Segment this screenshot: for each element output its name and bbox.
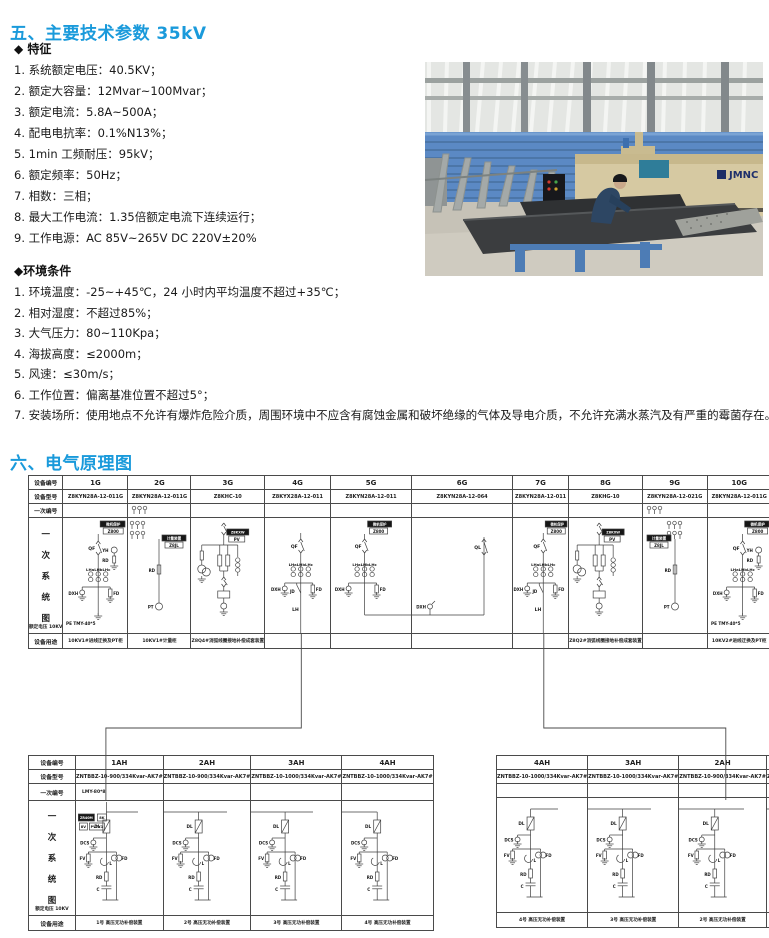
svg-text:微机保护: 微机保护: [749, 521, 765, 526]
svg-text:PE TMY-40*5: PE TMY-40*5: [66, 621, 96, 626]
diagram-char: 一: [41, 528, 50, 540]
svg-text:DXH: DXH: [514, 587, 524, 592]
svg-text:FD: FD: [300, 856, 307, 861]
cell-4AH-schematic: DLDCSFVFDLRDC: [497, 798, 588, 913]
svg-text:C: C: [188, 887, 191, 892]
svg-text:Z8KXW: Z8KXW: [231, 530, 245, 534]
cell-8G-schematic: Z8KXWPV: [569, 518, 643, 634]
diagram-vertical-label: 一次系统图额定电压 10KV: [29, 520, 62, 632]
cell-2AH-id: 2AH: [163, 756, 251, 770]
schematic-3AH: DLDCSFVFDLRDC: [588, 799, 651, 912]
svg-text:8V: 8V: [81, 825, 87, 829]
feature-item: 5. 1min 工频耐压：95kV；: [14, 144, 419, 165]
cell-8G-primary: [569, 504, 643, 518]
cell-3G-model: Z8KHC-10: [191, 490, 265, 504]
svg-text:RD: RD: [520, 872, 527, 877]
svg-text:RD: RD: [705, 872, 712, 877]
diagram-char: 统: [48, 873, 57, 885]
cell-9G-purpose: [642, 634, 707, 649]
svg-text:Z8JL: Z8JL: [170, 542, 180, 547]
diagram-vertical-label: 一次系统图额定电压 10KV: [29, 802, 75, 914]
device-table: 设备编号1G2G3G4G5G6G7G8G9G10G设备型号Z8KYN28A-12…: [28, 475, 769, 649]
row-label-diagram: 一次系统图额定电压 10KV: [29, 801, 76, 916]
svg-text:QF: QF: [355, 544, 362, 550]
svg-text:FD: FD: [393, 856, 400, 861]
cell-4AH-purpose: 4号 高压无功补偿装置: [342, 916, 433, 931]
svg-text:微机保护: 微机保护: [372, 521, 387, 526]
svg-text:8K: 8K: [99, 816, 105, 820]
cell-8G-id: 8G: [569, 476, 643, 490]
svg-text:L: L: [534, 858, 537, 863]
feature-item: 9. 工作电源：AC 85V~265V DC 220V±20%: [14, 228, 419, 249]
svg-text:RD: RD: [149, 568, 156, 573]
schematic-2AH: DLDCSFVFDLRDC: [679, 799, 744, 912]
svg-text:DCS: DCS: [259, 840, 268, 845]
cell-10G-model: Z8KYN28A-12-011G: [707, 490, 769, 504]
row-label-purpose: 设备用途: [29, 634, 63, 649]
svg-text:QF: QF: [89, 546, 96, 552]
svg-text:LHaLHbLHc: LHaLHbLHc: [289, 562, 313, 567]
cell-3AH-id: 3AH: [588, 756, 679, 770]
svg-text:PT: PT: [664, 604, 670, 609]
svg-text:LHaLHbLHc: LHaLHbLHc: [730, 567, 754, 572]
svg-text:PV: PV: [609, 536, 616, 541]
svg-text:DCS: DCS: [597, 837, 606, 842]
row-label-id: 设备编号: [29, 756, 76, 770]
svg-text:DL: DL: [273, 824, 279, 829]
svg-text:FD: FD: [316, 587, 323, 592]
svg-text:QF: QF: [732, 546, 739, 552]
cell-9G-model: Z8KYN28A-12-021G: [642, 490, 707, 504]
schematic-10G: 微机保护Z800QFYHRDLHaLHbLHcDXHFDPE TMY-40*5: [708, 519, 769, 633]
cell-5G-primary: [331, 504, 412, 518]
cell-4AH-id: 4AH: [342, 756, 433, 770]
cell-4AH-id: 4AH: [497, 756, 588, 770]
svg-text:FD: FD: [558, 587, 565, 592]
features-heading: ◆ 特征: [14, 40, 419, 57]
diagram-chars: 一次系统图: [48, 810, 57, 906]
svg-text:FD: FD: [380, 587, 387, 592]
cell-2AH-schematic: DLDCSFVFDLRDC: [679, 798, 767, 913]
svg-text:DXH: DXH: [713, 591, 723, 596]
schematic-1G: 微机保护Z800QFYHRDLHaLHbLHcDXHFDPE TMY-40*5: [63, 519, 127, 633]
svg-text:PE TMY-40*5: PE TMY-40*5: [711, 621, 741, 626]
diagram-char: 图: [48, 894, 57, 906]
diagram-char: 次: [41, 549, 50, 561]
env-item: 6. 工作位置：偏离基准位置不超过5°；: [14, 385, 766, 406]
row-label-diagram: 一次系统图额定电压 10KV: [29, 518, 63, 634]
bottom-right-schematic-table: 4AH3AH2AH1AHZNTBBZ-10-1000/334Kvar-AK7#Z…: [496, 755, 769, 928]
cell-4AH-model: ZNTBBZ-10-1000/334Kvar-AK7#: [342, 770, 433, 784]
diagram-char: 图: [41, 612, 50, 624]
cell-4G-id: 4G: [265, 476, 331, 490]
svg-text:微机保护: 微机保护: [105, 521, 121, 526]
row-label-model: 设备型号: [29, 770, 76, 784]
svg-text:FV: FV: [596, 853, 603, 858]
svg-text:JD: JD: [532, 589, 538, 594]
svg-text:DCS: DCS: [689, 837, 698, 842]
cell-7G-schematic: 微机保护Z800QFLHaLHbLHcDXHJDFDLH: [513, 518, 569, 634]
diagram-char: 一: [48, 810, 57, 822]
svg-text:FV: FV: [688, 853, 695, 858]
svg-text:Z800: Z800: [108, 528, 119, 533]
svg-text:RD: RD: [664, 568, 671, 573]
svg-text:DCS: DCS: [80, 840, 89, 845]
cell-1G-schematic: 微机保护Z800QFYHRDLHaLHbLHcDXHFDPE TMY-40*5: [63, 518, 128, 634]
svg-text:C: C: [275, 887, 278, 892]
cell-2G-schematic: 计量装置Z8JLRDPT: [128, 518, 191, 634]
svg-text:Z800: Z800: [551, 528, 562, 533]
svg-text:Z8KXW: Z8KXW: [606, 530, 620, 534]
svg-text:LH: LH: [292, 607, 299, 613]
svg-text:DL: DL: [365, 824, 371, 829]
env-item: 1. 环境温度：-25~+45℃，24 小时内平均温度不超过+35℃；: [14, 282, 766, 303]
rated-voltage-label: 额定电压 10KV: [29, 624, 62, 630]
cell-4G-schematic: QFLHaLHbLHcDXHJDFDLH: [265, 518, 331, 634]
env-item: 5. 风速：≤30m/s；: [14, 364, 766, 385]
schematic-9G: 计量装置Z8JLRDPT: [643, 519, 707, 633]
cell-3AH-schematic: DLDCSFVFDLRDC: [251, 801, 342, 916]
svg-text:LHaLHbLHc: LHaLHbLHc: [531, 562, 555, 567]
feature-item: 2. 额定大容量：12Mvar~100Mvar；: [14, 81, 419, 102]
schematic-3AH: DLDCSFVFDLRDC: [251, 802, 313, 915]
cell-6G-model: Z8KYN28A-12-064: [412, 490, 513, 504]
features-list: ◆ 特征 1. 系统额定电压：40.5KV；2. 额定大容量：12Mvar~10…: [14, 40, 419, 249]
svg-text:QL: QL: [474, 545, 481, 551]
svg-text:QF: QF: [291, 544, 298, 550]
schematic-4G: QFLHaLHbLHcDXHJDFDLH: [265, 519, 330, 633]
svg-text:FV: FV: [351, 856, 358, 861]
device-table: 4AH3AH2AH1AHZNTBBZ-10-1000/334Kvar-AK7#Z…: [496, 755, 769, 928]
svg-text:Z8JL: Z8JL: [654, 542, 664, 547]
svg-text:DCS: DCS: [351, 840, 360, 845]
cell-2G-model: Z8KYN28A-12-011G: [128, 490, 191, 504]
svg-text:RD: RD: [612, 872, 619, 877]
cell-5G-id: 5G: [331, 476, 412, 490]
diagram-char: 系: [41, 570, 50, 582]
svg-text:微机保护: 微机保护: [550, 521, 565, 526]
svg-text:DCS: DCS: [504, 837, 513, 842]
cell-6G-purpose: [412, 634, 513, 649]
schematic-2AH: DLDCSFVFDLRDC: [164, 802, 227, 915]
cell-7G-model: Z8KYN28A-12-011: [513, 490, 569, 504]
svg-text:YH: YH: [102, 548, 109, 553]
svg-text:FD: FD: [730, 853, 737, 858]
svg-text:YH: YH: [745, 548, 752, 553]
cell-1AH-primary: LMY-80*8: [76, 784, 164, 801]
env-heading: ◆环境条件: [14, 262, 766, 279]
cell-3AH-primary: [251, 784, 342, 801]
svg-text:DCS: DCS: [172, 840, 181, 845]
svg-text:QF: QF: [533, 544, 540, 550]
cell-6G-schematic: QLDXH: [412, 518, 513, 634]
schematic-3G: Z8KXWPV: [191, 519, 254, 633]
svg-text:L: L: [718, 858, 721, 863]
cell-2G-id: 2G: [128, 476, 191, 490]
svg-text:FV: FV: [80, 856, 87, 861]
feature-item: 4. 配电电抗率：0.1%N13%；: [14, 123, 419, 144]
cell-6G-primary: [412, 504, 513, 518]
cell-3G-id: 3G: [191, 476, 265, 490]
cell-3AH-purpose: 3号 高压无功补偿装置: [588, 913, 679, 928]
svg-text:L: L: [381, 861, 384, 866]
diagram-char: 次: [48, 831, 57, 843]
svg-text:L: L: [109, 861, 112, 866]
cell-1G-id: 1G: [63, 476, 128, 490]
machine-brand-text: JMNC: [728, 170, 758, 181]
cell-2AH-primary: [679, 784, 767, 798]
schematic-6G: QLDXH: [412, 519, 512, 633]
schematic-8G: Z8KXWPV: [569, 519, 627, 633]
svg-text:ZR40M: ZR40M: [80, 816, 93, 820]
cell-3AH-schematic: DLDCSFVFDLRDC: [588, 798, 679, 913]
cell-3AH-model: ZNTBBZ-10-1000/334Kvar-AK7#: [588, 770, 679, 784]
cell-3AH-primary: [588, 784, 679, 798]
cell-3G-purpose: Z8Q4#消弧线圈接地补偿成套装置: [191, 634, 265, 649]
svg-text:RD: RD: [188, 875, 195, 880]
svg-text:LHaLHbLHc: LHaLHbLHc: [353, 562, 377, 567]
schematic-4AH: DLDCSFVFDLRDC: [342, 802, 406, 915]
diagram-chars: 一次系统图: [41, 528, 50, 624]
cell-2AH-id: 2AH: [679, 756, 767, 770]
cell-2G-primary: [128, 504, 191, 518]
svg-text:RD: RD: [746, 558, 753, 563]
feature-item: 8. 最大工作电流：1.35倍额定电流下连续运行；: [14, 207, 419, 228]
svg-text:计量装置: 计量装置: [167, 535, 182, 540]
cell-1G-primary: [63, 504, 128, 518]
svg-text:DL: DL: [518, 821, 524, 826]
cell-9G-id: 9G: [642, 476, 707, 490]
svg-text:DXH: DXH: [69, 591, 79, 596]
svg-text:FD: FD: [114, 591, 121, 596]
cell-5G-model: Z8KYN28A-12-011: [331, 490, 412, 504]
feature-item: 3. 额定电流：5.8A~500A；: [14, 102, 419, 123]
row-label-purpose: 设备用途: [29, 916, 76, 931]
cell-3AH-purpose: 3号 高压无功补偿装置: [251, 916, 342, 931]
cell-2AH-model: ZNTBBZ-10-900/334Kvar-AK7#: [163, 770, 251, 784]
cell-8G-purpose: Z8Q2#消弧线圈接地补偿成套装置: [569, 634, 643, 649]
svg-text:FD: FD: [213, 856, 220, 861]
row-label-id: 设备编号: [29, 476, 63, 490]
cell-4AH-purpose: 4号 高压无功补偿装置: [497, 913, 588, 928]
cell-1AH-purpose: 1号 高压无功补偿装置: [76, 916, 164, 931]
schematic-4AH: DLDCSFVFDLRDC: [497, 799, 558, 912]
fuse-symbols-2G: [128, 504, 189, 517]
diagram-char: 统: [41, 591, 50, 603]
cell-1G-model: Z8KYN28A-12-011G: [63, 490, 128, 504]
cell-9G-schematic: 计量装置Z8JLRDPT: [642, 518, 707, 634]
cell-4AH-schematic: DLDCSFVFDLRDC: [342, 801, 433, 916]
svg-text:RD: RD: [275, 875, 282, 880]
cell-3G-schematic: Z8KXWPV: [191, 518, 265, 634]
cell-9G-primary: [642, 504, 707, 518]
primary-number: LMY-80*8: [76, 790, 106, 795]
svg-text:DXH: DXH: [416, 604, 426, 609]
cell-4AH-primary: [342, 784, 433, 801]
env-item: 7. 安装场所：使用地点不允许有爆炸危险介质，周围环境中不应含有腐蚀金属和破坏绝…: [14, 405, 766, 426]
top-schematic-table: 设备编号1G2G3G4G5G6G7G8G9G10G设备型号Z8KYN28A-12…: [28, 475, 769, 649]
cell-7G-id: 7G: [513, 476, 569, 490]
cell-1AH-model: ZNTBBZ-10-900/334Kvar-AK7#: [76, 770, 164, 784]
svg-text:FD: FD: [546, 853, 553, 858]
svg-text:JD: JD: [289, 589, 295, 594]
cell-10G-id: 10G: [707, 476, 769, 490]
cell-4G-primary: [265, 504, 331, 518]
svg-text:C: C: [705, 884, 708, 889]
cell-2AH-purpose: 2号 高压无功补偿装置: [163, 916, 251, 931]
svg-text:C: C: [96, 887, 99, 892]
cell-5G-purpose: [331, 634, 412, 649]
svg-text:FV: FV: [504, 853, 511, 858]
svg-text:DL: DL: [703, 821, 709, 826]
svg-text:C: C: [521, 884, 524, 889]
svg-text:LH: LH: [535, 607, 542, 613]
cell-10G-purpose: 10KV2#进线迂换及PT柜: [707, 634, 769, 649]
env-item: 4. 海拔高度：≤2000m；: [14, 344, 766, 365]
schematic-5G: 微机保护Z800QFLHaLHbLHcDXHFD: [331, 519, 411, 633]
svg-text:FV: FV: [259, 856, 266, 861]
cell-4AH-model: ZNTBBZ-10-1000/334Kvar-AK7#: [497, 770, 588, 784]
cell-7G-purpose: [513, 634, 569, 649]
schematic-7G: 微机保护Z800QFLHaLHbLHcDXHJDFDLH: [513, 519, 568, 633]
row-label-primary: 一次编号: [29, 784, 76, 801]
env-item: 2. 相对湿度：不超过85%；: [14, 303, 766, 324]
cell-4AH-primary: [497, 784, 588, 798]
svg-text:计量装置: 计量装置: [652, 535, 667, 540]
cell-4G-purpose: [265, 634, 331, 649]
row-label-model: 设备型号: [29, 490, 63, 504]
svg-text:C: C: [613, 884, 616, 889]
cell-5G-schematic: 微机保护Z800QFLHaLHbLHcDXHFD: [331, 518, 412, 634]
cell-2AH-primary: [163, 784, 251, 801]
svg-text:LHaLHbLHc: LHaLHbLHc: [87, 567, 111, 572]
cell-10G-primary: [707, 504, 769, 518]
svg-text:FD: FD: [757, 591, 764, 596]
cell-1G-purpose: 10KV1#进线迂换及PT柜: [63, 634, 128, 649]
diagram-char: 系: [48, 852, 57, 864]
cell-3AH-model: ZNTBBZ-10-1000/334Kvar-AK7#: [251, 770, 342, 784]
cell-3G-primary: [191, 504, 265, 518]
feature-item: 7. 相数：三相；: [14, 186, 419, 207]
cell-8G-model: Z8KHG-10: [569, 490, 643, 504]
schematic-1AH: ZR40M8K8VPVYY1DLDCSFVFDLRDC: [76, 802, 138, 915]
svg-text:FV: FV: [171, 856, 178, 861]
row-label-primary: 一次编号: [29, 504, 63, 518]
factory-photo: JMNC: [425, 62, 763, 276]
env-item: 3. 大气压力：80~110Kpa；: [14, 323, 766, 344]
feature-item: 6. 额定频率：50Hz；: [14, 165, 419, 186]
env-items: 1. 环境温度：-25~+45℃，24 小时内平均温度不超过+35℃；2. 相对…: [14, 282, 766, 426]
svg-text:DL: DL: [186, 824, 192, 829]
svg-text:DXH: DXH: [335, 587, 345, 592]
cell-1AH-id: 1AH: [76, 756, 164, 770]
svg-text:L: L: [288, 861, 291, 866]
svg-text:FD: FD: [638, 853, 645, 858]
svg-text:C: C: [368, 887, 371, 892]
factory-photo-art: JMNC: [425, 62, 763, 276]
fuse-symbols-9G: [643, 504, 706, 517]
cell-3AH-id: 3AH: [251, 756, 342, 770]
svg-text:RD: RD: [96, 875, 103, 880]
cell-10G-schematic: 微机保护Z800QFYHRDLHaLHbLHcDXHFDPE TMY-40*5: [707, 518, 769, 634]
svg-text:RD: RD: [367, 875, 374, 880]
svg-text:Z800: Z800: [752, 528, 763, 533]
device-table: 设备编号1AH2AH3AH4AH设备型号ZNTBBZ-10-900/334Kva…: [28, 755, 434, 931]
svg-text:L: L: [201, 861, 204, 866]
cell-1AH-schematic: ZR40M8K8VPVYY1DLDCSFVFDLRDC: [76, 801, 164, 916]
svg-text:DL: DL: [611, 821, 617, 826]
svg-text:PV: PV: [234, 536, 241, 541]
features-items: 1. 系统额定电压：40.5KV；2. 额定大容量：12Mvar~100Mvar…: [14, 60, 419, 249]
cell-4G-model: Z8KYX28A-12-011: [265, 490, 331, 504]
cell-2G-purpose: 10KV1#计量柜: [128, 634, 191, 649]
schematic-2G: 计量装置Z8JLRDPT: [128, 519, 190, 633]
svg-text:DL: DL: [94, 824, 100, 829]
cell-6G-id: 6G: [412, 476, 513, 490]
rated-voltage-label: 额定电压 10KV: [35, 906, 68, 912]
cell-2AH-purpose: 2号 高压无功补偿装置: [679, 913, 767, 928]
environment-list: ◆环境条件 1. 环境温度：-25~+45℃，24 小时内平均温度不超过+35℃…: [14, 262, 766, 426]
svg-text:FD: FD: [121, 856, 128, 861]
svg-text:L: L: [626, 858, 629, 863]
svg-text:Z800: Z800: [373, 528, 384, 533]
cell-2AH-schematic: DLDCSFVFDLRDC: [163, 801, 251, 916]
svg-text:RD: RD: [103, 558, 110, 563]
bottom-left-schematic-table: 设备编号1AH2AH3AH4AH设备型号ZNTBBZ-10-900/334Kva…: [28, 755, 434, 931]
svg-text:DXH: DXH: [271, 587, 281, 592]
cell-2AH-model: ZNTBBZ-10-900/334Kvar-AK7#: [679, 770, 767, 784]
cell-7G-primary: [513, 504, 569, 518]
feature-item: 1. 系统额定电压：40.5KV；: [14, 60, 419, 81]
section6-title: 六、电气原理图: [10, 449, 133, 474]
svg-text:PT: PT: [148, 604, 154, 609]
